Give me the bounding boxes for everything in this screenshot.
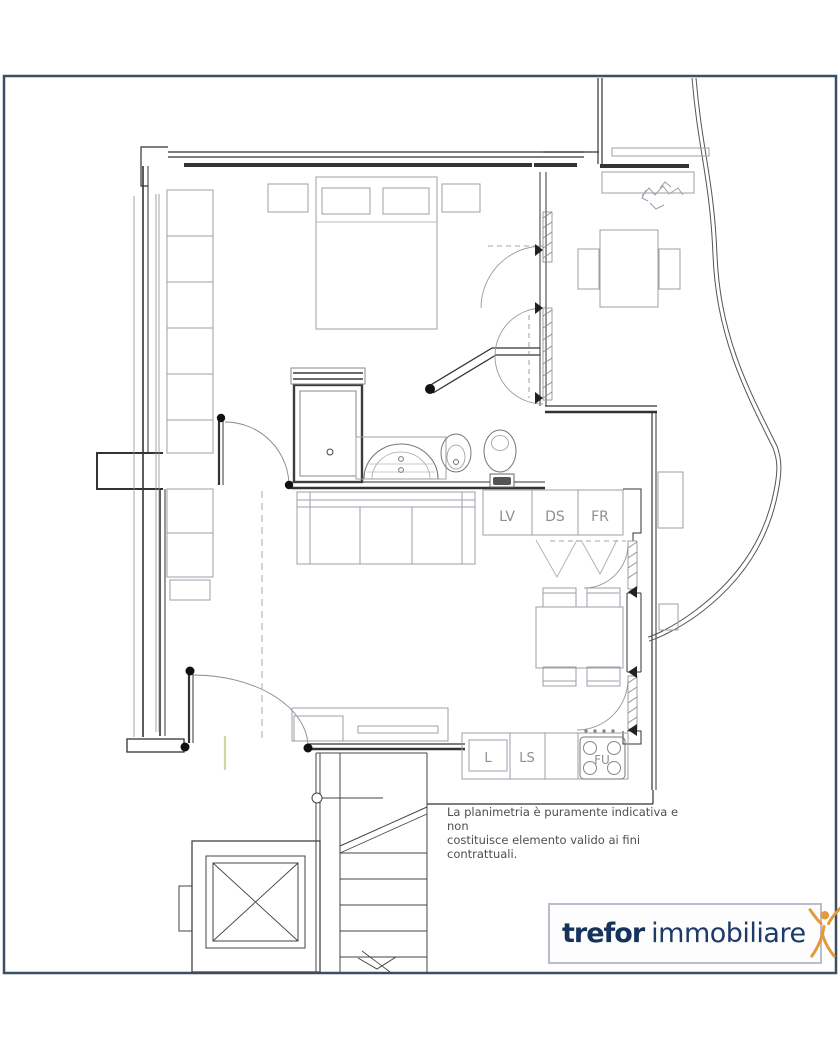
- counter-label-l: L: [484, 751, 492, 766]
- terrace-planter-3: [659, 604, 678, 630]
- disclaimer-line-1: La planimetria è puramente indicativa e …: [447, 805, 687, 833]
- toilet: [484, 430, 516, 487]
- sofa: [297, 492, 475, 564]
- logo-text-bold: trefor: [562, 918, 644, 949]
- vanity-sink: [356, 437, 446, 479]
- staircase: [312, 753, 427, 972]
- closet-cabinet: [167, 489, 213, 600]
- walls: [97, 78, 689, 804]
- terrace-boundary-curve: [648, 78, 781, 641]
- bedroom-door: [217, 414, 293, 489]
- dining-table-set: [536, 588, 623, 686]
- disclaimer-line-2: costituisce elemento valido ai fini cont…: [447, 833, 687, 861]
- bathroom: [291, 368, 516, 487]
- double-bed: [316, 177, 437, 329]
- terrace-planter-2: [658, 472, 683, 528]
- left-balcony-rail: [134, 194, 159, 737]
- nightstand-left: [268, 184, 308, 212]
- person-arms-raised-icon: [802, 906, 840, 962]
- counter-label-ds: DS: [545, 509, 565, 525]
- staircase-treads: [340, 853, 427, 957]
- terrace-furniture: [578, 148, 709, 630]
- wardrobe: [167, 190, 213, 453]
- bedroom-window-doors: [481, 212, 552, 404]
- plant-sketch: [642, 182, 683, 209]
- tv-sideboard: [292, 708, 448, 741]
- counter-label-ls: LS: [519, 751, 535, 766]
- terrace-bench: [612, 148, 709, 156]
- elevator-cross: [213, 863, 298, 941]
- entrance-door: [181, 667, 313, 753]
- elevator: [179, 841, 320, 972]
- living-room-furniture: [225, 491, 475, 770]
- logo-text-regular: immobiliare: [651, 918, 805, 949]
- shower: [291, 368, 365, 482]
- kitchen: [462, 490, 628, 779]
- kitchen-upper-counter: [483, 490, 623, 577]
- kitchen-window-doors: [550, 541, 637, 736]
- dining-table: [536, 607, 623, 668]
- nightstand-right: [442, 184, 480, 212]
- counter-label-lv: LV: [499, 509, 515, 525]
- counter-label-fu: FU: [594, 753, 610, 767]
- disclaimer-text: La planimetria è puramente indicativa e …: [447, 805, 687, 861]
- floor-plan-drawing: LV DS FR L LS FU: [0, 0, 840, 1050]
- terrace-table: [600, 230, 658, 307]
- agency-logo: trefor immobiliare: [548, 903, 822, 964]
- counter-label-fr: FR: [591, 509, 609, 525]
- floor-plan-page: LV DS FR L LS FU La planimetria è purame…: [0, 0, 840, 1050]
- terrace-chair-left: [578, 249, 599, 289]
- terrace-chair-right: [659, 249, 680, 289]
- pillow-left: [322, 188, 370, 214]
- plan-border: [4, 76, 836, 973]
- pillow-right: [383, 188, 429, 214]
